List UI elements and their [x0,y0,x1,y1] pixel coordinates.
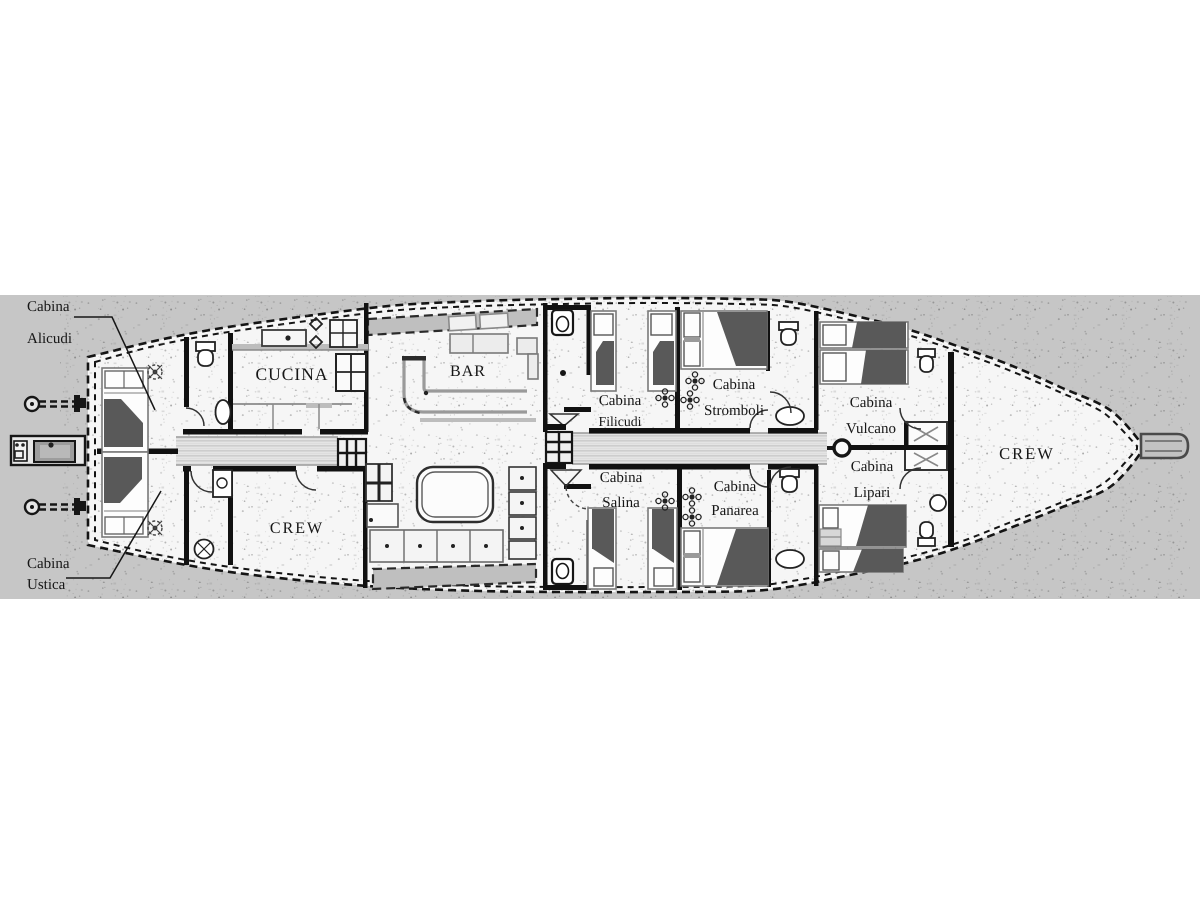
svg-text:Cabina: Cabina [27,556,70,572]
svg-text:Cabina: Cabina [713,377,756,393]
svg-text:Cabina: Cabina [600,470,643,486]
svg-text:Lipari: Lipari [854,485,891,501]
svg-text:Cabina: Cabina [599,393,642,409]
svg-text:Cabina: Cabina [850,395,893,411]
svg-text:CUCINA: CUCINA [255,364,328,384]
svg-text:Alicudi: Alicudi [27,331,72,347]
svg-text:Cabina: Cabina [27,299,70,315]
svg-text:Cabina: Cabina [714,479,757,495]
svg-text:Salina: Salina [602,495,640,511]
svg-text:Filicudi: Filicudi [599,414,642,429]
svg-text:Cabina: Cabina [851,459,894,475]
svg-text:Stromboli: Stromboli [704,403,764,419]
svg-text:CREW: CREW [999,444,1055,463]
svg-text:BAR: BAR [450,363,486,380]
svg-text:Panarea: Panarea [711,503,759,519]
svg-text:CREW: CREW [270,520,324,537]
svg-text:Vulcano: Vulcano [846,421,896,437]
svg-text:Ustica: Ustica [27,577,66,593]
